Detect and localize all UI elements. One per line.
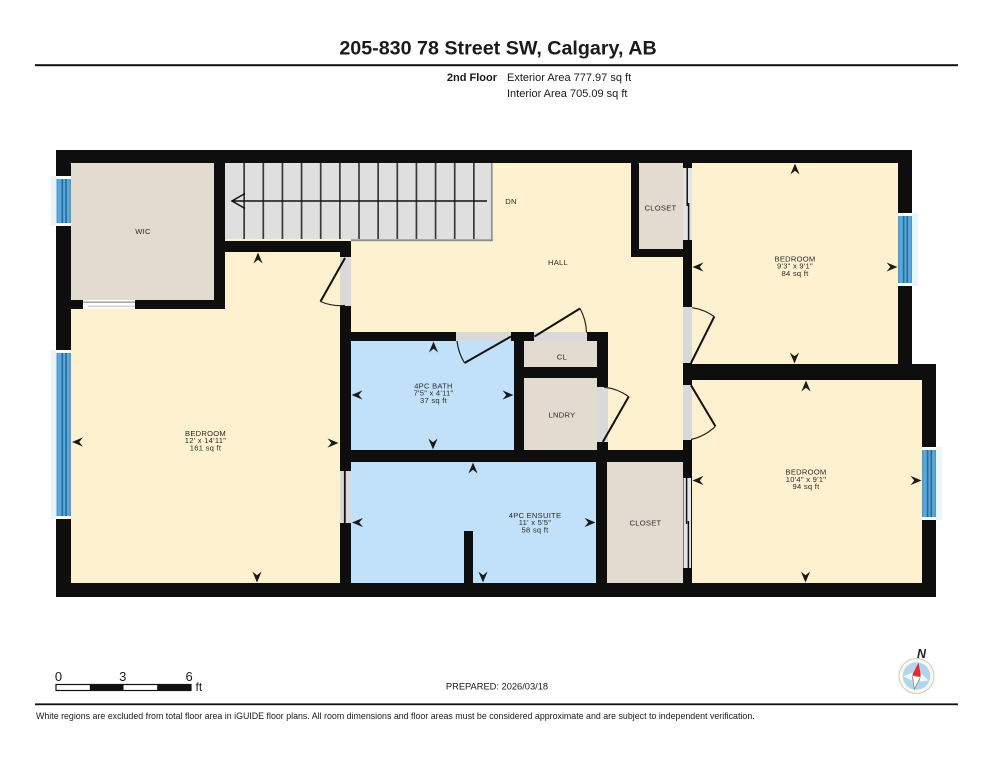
svg-text:2nd Floor: 2nd Floor — [447, 72, 498, 84]
svg-text:PREPARED: 2026/03/18: PREPARED: 2026/03/18 — [446, 682, 548, 692]
svg-text:3: 3 — [119, 669, 126, 684]
svg-text:DN: DN — [505, 197, 516, 206]
svg-text:CL: CL — [557, 352, 567, 361]
svg-text:161 sq ft: 161 sq ft — [190, 443, 222, 452]
svg-text:37 sq ft: 37 sq ft — [420, 396, 448, 405]
svg-text:N: N — [917, 647, 927, 661]
svg-text:205-830 78 Street SW, Calgary,: 205-830 78 Street SW, Calgary, AB — [339, 38, 656, 60]
svg-text:94 sq ft: 94 sq ft — [793, 482, 821, 491]
svg-text:84 sq ft: 84 sq ft — [782, 269, 810, 278]
svg-text:CLOSET: CLOSET — [630, 519, 662, 528]
svg-text:ft: ft — [196, 680, 203, 694]
svg-text:Exterior Area 777.97 sq ft: Exterior Area 777.97 sq ft — [507, 72, 631, 84]
svg-text:HALL: HALL — [548, 258, 568, 267]
svg-text:Interior Area 705.09 sq ft: Interior Area 705.09 sq ft — [507, 88, 627, 100]
svg-text:6: 6 — [185, 669, 192, 684]
svg-text:0: 0 — [55, 669, 62, 684]
svg-text:White regions are excluded fro: White regions are excluded from total fl… — [36, 711, 755, 721]
svg-text:LNDRY: LNDRY — [549, 411, 576, 420]
svg-text:WIC: WIC — [135, 227, 151, 236]
svg-text:CLOSET: CLOSET — [645, 203, 677, 212]
svg-text:58 sq ft: 58 sq ft — [522, 525, 550, 534]
